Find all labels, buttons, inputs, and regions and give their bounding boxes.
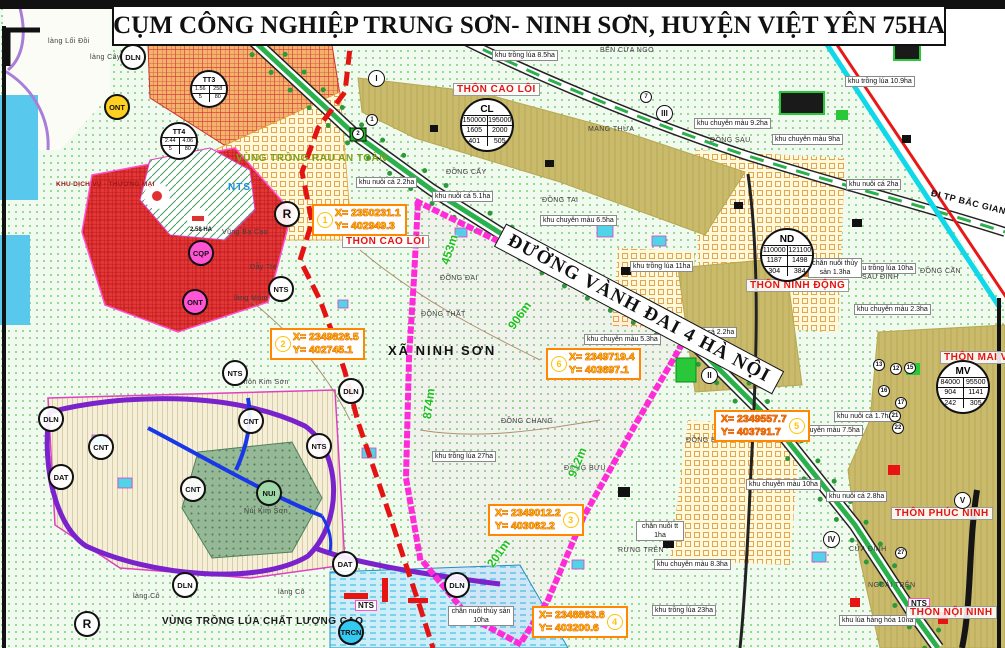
place-name: BẾN CỬA NGÒ	[600, 47, 654, 54]
number-marker: 2	[352, 128, 364, 140]
place-name: CỬA ĐÌNH	[849, 546, 887, 553]
stat-code: MV	[938, 366, 988, 378]
coord-callout: 2 X= 2349826.5 Y= 402745.1	[270, 328, 365, 360]
stat-cell: 2.44	[162, 138, 180, 146]
number-marker: 17	[895, 397, 907, 409]
number-marker: 16	[878, 385, 890, 397]
plot-label: khu nuôi cá 2.8ha	[826, 491, 887, 502]
service-zone-label: KHU DỊCH VỤ - THƯƠNG MẠI	[56, 181, 155, 188]
number-marker: 7	[640, 91, 652, 103]
zone-marker: DLN	[38, 406, 64, 432]
coord-number: 3	[563, 512, 579, 528]
zone-marker: DLN	[120, 44, 146, 70]
number-marker: 21	[889, 410, 901, 422]
zone-marker: NTS	[268, 276, 294, 302]
place-name: MANG THỪA	[588, 126, 634, 133]
plot-label: chăn nuôi thủy sản 1.3ha	[808, 258, 862, 278]
stat-code: TT3	[192, 77, 226, 86]
coord-x: X= 2348863.8	[539, 609, 605, 622]
number-marker: 12	[890, 363, 902, 375]
coord-y: Y= 402949.3	[335, 220, 401, 233]
dark-plot-ne2	[894, 44, 920, 60]
plot-label: khu chuyên màu 9ha	[772, 134, 843, 145]
coord-callout: 4 X= 2348863.8 Y= 403200.6	[532, 606, 628, 638]
number-marker: 27	[895, 547, 907, 559]
coord-callout: 3 X= 2349012.2 Y= 403062.2	[488, 504, 584, 536]
village-label: THÔN CAO LÔI	[453, 83, 540, 96]
number-marker: 13	[873, 359, 885, 371]
plot-label: khu trồng lúa 11ha	[630, 261, 693, 272]
number-marker: 15	[904, 362, 916, 374]
village-label: THÔN NỘI NINH	[906, 606, 997, 619]
place-name: Núi Kim Sơn	[244, 508, 288, 515]
coord-y: Y= 403697.1	[569, 364, 635, 377]
coord-number: 1	[317, 212, 333, 228]
place-name: ĐỒNG TAI	[542, 197, 578, 204]
coord-callout: 1 X= 2350231.1 Y= 402949.3	[312, 204, 407, 236]
zone-marker: DAT	[48, 464, 74, 490]
stat-cell: 121100	[788, 246, 813, 256]
stat-cell: 150000	[462, 116, 488, 126]
zone-marker: DLN	[444, 572, 470, 598]
roman-marker: I	[368, 70, 385, 87]
plot-label: chăn nuôi thủy sản 10ha	[448, 606, 514, 626]
plot-label: khu trồng lúa 8.5ha	[492, 50, 558, 61]
coord-x: X= 2349826.5	[293, 331, 359, 344]
dark-plot-ne	[780, 92, 824, 114]
plot-label: khu chuyên màu 10ha	[746, 479, 821, 490]
nts-label: NTS	[355, 600, 377, 611]
zone-marker: DLN	[338, 378, 364, 404]
nts-label: NTS	[228, 182, 251, 193]
zone-marker: CNT	[238, 408, 264, 434]
zone-marker: ONT	[104, 94, 130, 120]
place-name: NGOÀI TRÊN	[868, 582, 915, 589]
place-name: RỪNG TRÊN	[618, 547, 664, 554]
plot-label: khu chuyên màu 2.3ha	[854, 304, 931, 315]
stat-cell: 904	[938, 388, 964, 398]
coord-x: X= 2350231.1	[335, 207, 401, 220]
place-name: ĐỒNG SAU	[710, 137, 751, 144]
coord-callout: 6 X= 2349719.4 Y= 403697.1	[546, 348, 641, 380]
stat-code: ND	[762, 234, 812, 246]
stat-circle: TT4 2.444.06 580	[160, 122, 198, 160]
map-title: CỤM CÔNG NGHIỆP TRUNG SƠN- NINH SƠN, HUY…	[112, 5, 946, 46]
plot-label: khu trồng lúa 23ha	[652, 605, 716, 616]
stat-cell: 1605	[462, 126, 488, 136]
zone-marker: CNT	[180, 476, 206, 502]
plot-label: chăn nuôi tt 1ha	[636, 521, 684, 541]
stat-cell: 80	[210, 94, 227, 102]
plot-label: khu nuôi cá 2ha	[846, 179, 901, 190]
plot-label: khu nuôi cá 1.7ha	[834, 411, 895, 422]
service-area-label: 2.58 HA	[190, 227, 212, 233]
zone-marker: CNT	[88, 434, 114, 460]
zone-marker: NUI	[256, 480, 282, 506]
stat-cell: 84000	[938, 378, 964, 388]
stat-cell: 2000	[488, 126, 513, 136]
plot-label: khu chuyên màu 6.5ha	[540, 215, 617, 226]
place-name: ĐỒNG CẦN	[920, 268, 961, 275]
plot-label: khu trồng lúa 27ha	[432, 451, 496, 462]
stat-cell: 1141	[964, 388, 989, 398]
coord-number: 4	[607, 614, 623, 630]
place-name: làng Mỏm	[234, 295, 268, 302]
village-label: THÔN PHÚC NINH	[891, 507, 993, 520]
frame-left	[2, 26, 6, 648]
coord-x: X= 2349012.2	[495, 507, 561, 520]
place-name: Thôn Kim Sơn	[239, 379, 289, 386]
stat-cell: 195000	[488, 116, 513, 126]
stat-cell: 110000	[762, 246, 788, 256]
zone-marker: R	[274, 201, 300, 227]
zone-marker: NTS	[222, 360, 248, 386]
plot-label: khu nuôi cá 2.2ha	[356, 177, 417, 188]
coord-y: Y= 403791.7	[721, 426, 787, 439]
roman-marker: II	[701, 367, 718, 384]
plot-label: khu nuôi cá 5.1ha	[432, 191, 493, 202]
zone-marker: DLN	[172, 572, 198, 598]
rice-zone-label: VÙNG TRỒNG LÚA CHẤT LƯỢNG CAO	[162, 616, 364, 627]
place-name: Dẫy Trẹ	[250, 264, 277, 271]
place-name: làng Cô	[278, 589, 305, 596]
number-marker: 22	[892, 422, 904, 434]
place-name: làng Lối Đồi	[48, 38, 90, 45]
stat-cell: 5	[192, 94, 210, 102]
stat-cell: 1187	[762, 256, 788, 266]
place-name: ĐỒNG ĐAI	[440, 275, 478, 282]
coord-y: Y= 402745.1	[293, 344, 359, 357]
place-name: làng Cô	[133, 593, 160, 600]
planning-map: CỤM CÔNG NGHIỆP TRUNG SƠN- NINH SƠN, HUY…	[0, 0, 1005, 648]
stat-circle: CL 150000195000 16052000 401505	[460, 98, 514, 152]
coord-number: 5	[789, 418, 805, 434]
stat-cell: 1.56	[192, 86, 210, 94]
plot-label: khu lúa hàng hóa 10ha	[839, 615, 916, 626]
zone-marker: TRCN	[338, 619, 364, 645]
commune-label: XÃ NINH SƠN	[388, 343, 496, 358]
zone-marker: DAT	[332, 551, 358, 577]
coord-x: X= 2349719.4	[569, 351, 635, 364]
coord-callout: 5 X= 2349557.7 Y= 403791.7	[714, 410, 810, 442]
veg-zone-label: VÙNG TRỒNG RAU AN TOÀN	[236, 153, 387, 164]
zone-marker: R	[74, 611, 100, 637]
village-label: THÔN NINH ĐỘNG	[746, 279, 849, 292]
stat-code: CL	[462, 104, 512, 116]
stat-cell: 4.06	[180, 138, 197, 146]
plot-label: khu chuyên màu 8.3ha	[654, 559, 731, 570]
place-name: ĐỒNG CẤY	[446, 169, 487, 176]
zone-marker: CQP	[188, 240, 214, 266]
village-label: THÔN CAO LÔI	[342, 235, 429, 248]
plot-label: khu trồng lúa 10.9ha	[845, 76, 915, 87]
roman-marker: V	[954, 492, 971, 509]
zone-marker: ONT	[182, 289, 208, 315]
stat-code: TT4	[162, 129, 196, 138]
roman-marker: III	[656, 105, 673, 122]
stat-cell: 80	[180, 146, 197, 154]
stat-cell: 95500	[964, 378, 989, 388]
coord-x: X= 2349557.7	[721, 413, 787, 426]
place-name: Vũng Bạ Cạo	[222, 229, 268, 236]
zone-marker: NTS	[306, 433, 332, 459]
place-name: ĐỒNG THẤT	[421, 311, 466, 318]
roman-marker: IV	[823, 531, 840, 548]
stat-circle: ND 110000121100 11871498 304384	[760, 228, 814, 282]
stat-cell: 258	[210, 86, 227, 94]
stat-circle: MV 8400095500 9041141 242305	[936, 360, 990, 414]
plot-label: khu chuyên màu 5.3ha	[584, 334, 661, 345]
stat-cell: 1498	[788, 256, 813, 266]
coord-y: Y= 403062.2	[495, 520, 561, 533]
stat-cell: 5	[162, 146, 180, 154]
coord-number: 2	[275, 336, 291, 352]
number-marker: 1	[366, 114, 378, 126]
stat-circle: TT3 1.56258 580	[190, 70, 228, 108]
coord-number: 6	[551, 356, 567, 372]
coord-y: Y= 403200.6	[539, 622, 605, 635]
place-name: ĐỒNG CHANG	[501, 418, 553, 425]
plot-label: khu chuyên màu 9.2ha	[694, 118, 771, 129]
place-name: SAU ĐÌNH	[862, 274, 899, 281]
